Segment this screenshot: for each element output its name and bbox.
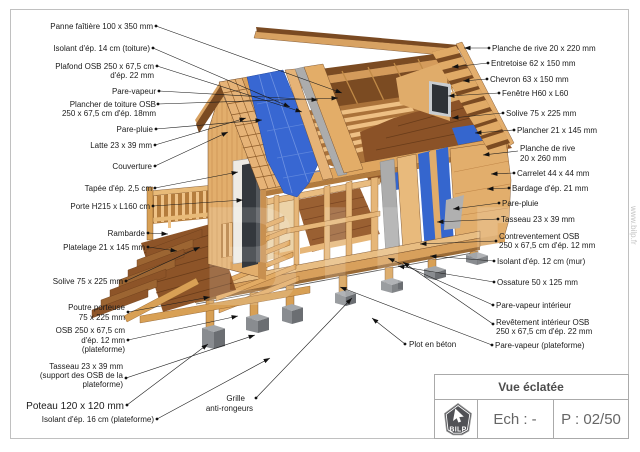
svg-text:Plafond OSB 250 x 67,5 cm: Plafond OSB 250 x 67,5 cm bbox=[55, 62, 154, 71]
svg-text:BILP: BILP bbox=[449, 427, 466, 434]
svg-text:www.bilp.fr: www.bilp.fr bbox=[629, 205, 638, 245]
svg-text:20 x 260 mm: 20 x 260 mm bbox=[520, 154, 567, 163]
svg-text:Vue éclatée: Vue éclatée bbox=[498, 380, 564, 394]
svg-text:Planche de rive 20 x 220 mm: Planche de rive 20 x 220 mm bbox=[492, 44, 596, 53]
svg-text:Ech : -: Ech : - bbox=[493, 411, 536, 428]
svg-text:Planche de rive: Planche de rive bbox=[520, 144, 576, 153]
svg-text:Ossature 50 x 125 mm: Ossature 50 x 125 mm bbox=[497, 278, 578, 287]
svg-text:Solive 75 x 225 mm: Solive 75 x 225 mm bbox=[53, 277, 124, 286]
svg-text:Isolant d'ép. 12 cm (mur): Isolant d'ép. 12 cm (mur) bbox=[497, 257, 586, 266]
svg-text:Pare-pluie: Pare-pluie bbox=[502, 199, 539, 208]
svg-text:75 x 225 mm: 75 x 225 mm bbox=[79, 313, 126, 322]
svg-text:Chevron 63 x 150 mm: Chevron 63 x 150 mm bbox=[490, 75, 569, 84]
svg-text:Couverture: Couverture bbox=[112, 162, 152, 171]
svg-text:Tapée d'ép. 2,5 cm: Tapée d'ép. 2,5 cm bbox=[85, 184, 153, 193]
svg-text:Carrelet 44 x 44 mm: Carrelet 44 x 44 mm bbox=[517, 169, 590, 178]
svg-text:Fenêtre H60 x L60: Fenêtre H60 x L60 bbox=[502, 89, 569, 98]
svg-text:Solive 75 x 225 mm: Solive 75 x 225 mm bbox=[506, 109, 577, 118]
svg-text:Bardage d'ép. 21 mm: Bardage d'ép. 21 mm bbox=[512, 184, 589, 193]
svg-text:plateforme): plateforme) bbox=[83, 380, 124, 389]
svg-text:Plancher 21 x 145 mm: Plancher 21 x 145 mm bbox=[517, 126, 597, 135]
svg-text:Pare-vapeur intérieur: Pare-vapeur intérieur bbox=[496, 301, 571, 310]
svg-text:Panne faîtière 100 x 350 mm: Panne faîtière 100 x 350 mm bbox=[50, 22, 153, 31]
svg-text:Isolant d'ép. 14 cm (toiture): Isolant d'ép. 14 cm (toiture) bbox=[53, 44, 150, 53]
svg-text:Rambarde: Rambarde bbox=[108, 229, 146, 238]
svg-text:Porte H215 x L160 cm: Porte H215 x L160 cm bbox=[70, 202, 150, 211]
svg-text:250 x 67,5 cm d'ép. 22 mm: 250 x 67,5 cm d'ép. 22 mm bbox=[496, 327, 593, 336]
svg-text:Pare-pluie: Pare-pluie bbox=[117, 125, 154, 134]
svg-text:Entretoise 62 x 150 mm: Entretoise 62 x 150 mm bbox=[491, 59, 576, 68]
svg-text:(support des OSB de la: (support des OSB de la bbox=[40, 371, 124, 380]
svg-text:Poutre porteuse: Poutre porteuse bbox=[68, 303, 125, 312]
svg-text:Pare-vapeur: Pare-vapeur bbox=[112, 87, 156, 96]
svg-text:Platelage 21 x 145 mm: Platelage 21 x 145 mm bbox=[63, 243, 145, 252]
svg-text:Pare-vapeur (plateforme): Pare-vapeur (plateforme) bbox=[495, 341, 585, 350]
svg-text:Poteau 120 x 120 mm: Poteau 120 x 120 mm bbox=[26, 401, 124, 412]
svg-text:Tasseau 23 x 39 mm: Tasseau 23 x 39 mm bbox=[501, 215, 575, 224]
svg-text:Tasseau 23 x 39 mm: Tasseau 23 x 39 mm bbox=[49, 362, 123, 371]
svg-text:Latte 23 x 39 mm: Latte 23 x 39 mm bbox=[90, 141, 152, 150]
svg-text:d'ép. 22 mm: d'ép. 22 mm bbox=[110, 71, 154, 80]
svg-text:250 x 67,5 cm d'ép. 12 mm: 250 x 67,5 cm d'ép. 12 mm bbox=[499, 241, 596, 250]
svg-text:Contreventement OSB: Contreventement OSB bbox=[499, 232, 579, 241]
svg-text:Isolant d'ép. 16 cm (plateform: Isolant d'ép. 16 cm (plateforme) bbox=[42, 415, 155, 424]
svg-text:anti-rongeurs: anti-rongeurs bbox=[206, 404, 253, 413]
svg-text:250 x 67,5 cm d'ép. 18mm: 250 x 67,5 cm d'ép. 18mm bbox=[62, 109, 156, 118]
svg-text:OSB 250 x 67,5 cm: OSB 250 x 67,5 cm bbox=[56, 326, 126, 335]
svg-text:Revêtement intérieur OSB: Revêtement intérieur OSB bbox=[496, 318, 589, 327]
svg-text:d'ép. 12 mm: d'ép. 12 mm bbox=[81, 336, 125, 345]
svg-text:P : 02/50: P : 02/50 bbox=[561, 411, 621, 428]
svg-text:Grille: Grille bbox=[226, 394, 245, 403]
svg-text:Plancher de toiture OSB: Plancher de toiture OSB bbox=[70, 100, 156, 109]
svg-text:(plateforme): (plateforme) bbox=[82, 345, 125, 354]
svg-text:Plot en béton: Plot en béton bbox=[409, 340, 456, 349]
